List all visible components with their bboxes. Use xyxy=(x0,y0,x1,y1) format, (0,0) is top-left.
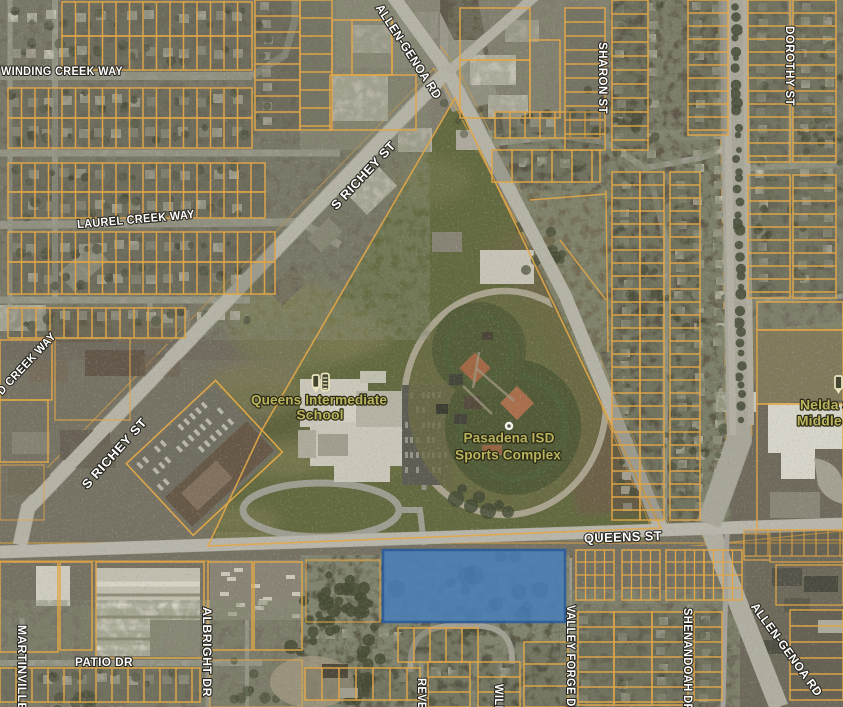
svg-text:Middle Sc: Middle Sc xyxy=(797,413,843,429)
svg-text:SHARON ST: SHARON ST xyxy=(596,42,610,114)
svg-text:School: School xyxy=(296,407,343,423)
svg-text:VALLEY FORGE DR: VALLEY FORGE DR xyxy=(564,605,576,707)
svg-text:QUEENS ST: QUEENS ST xyxy=(584,528,662,546)
svg-text:DOROTHY ST: DOROTHY ST xyxy=(783,26,797,106)
svg-text:REVERE DR: REVERE DR xyxy=(415,678,427,707)
svg-text:WINDING CREEK WAY: WINDING CREEK WAY xyxy=(1,64,123,78)
svg-text:Queens Intermediate: Queens Intermediate xyxy=(251,392,387,408)
svg-text:Sports Complex: Sports Complex xyxy=(455,448,561,463)
svg-text:SHENANDOAH DR: SHENANDOAH DR xyxy=(681,608,693,707)
svg-text:Pasadena ISD: Pasadena ISD xyxy=(464,431,555,446)
svg-text:Nelda S: Nelda S xyxy=(800,397,843,413)
svg-text:ALBRIGHT DR: ALBRIGHT DR xyxy=(200,607,212,697)
svg-text:WILMER DR: WILMER DR xyxy=(492,684,504,707)
svg-text:MARTINVILLE: MARTINVILLE xyxy=(15,625,27,707)
svg-text:PATIO DR: PATIO DR xyxy=(75,657,133,669)
